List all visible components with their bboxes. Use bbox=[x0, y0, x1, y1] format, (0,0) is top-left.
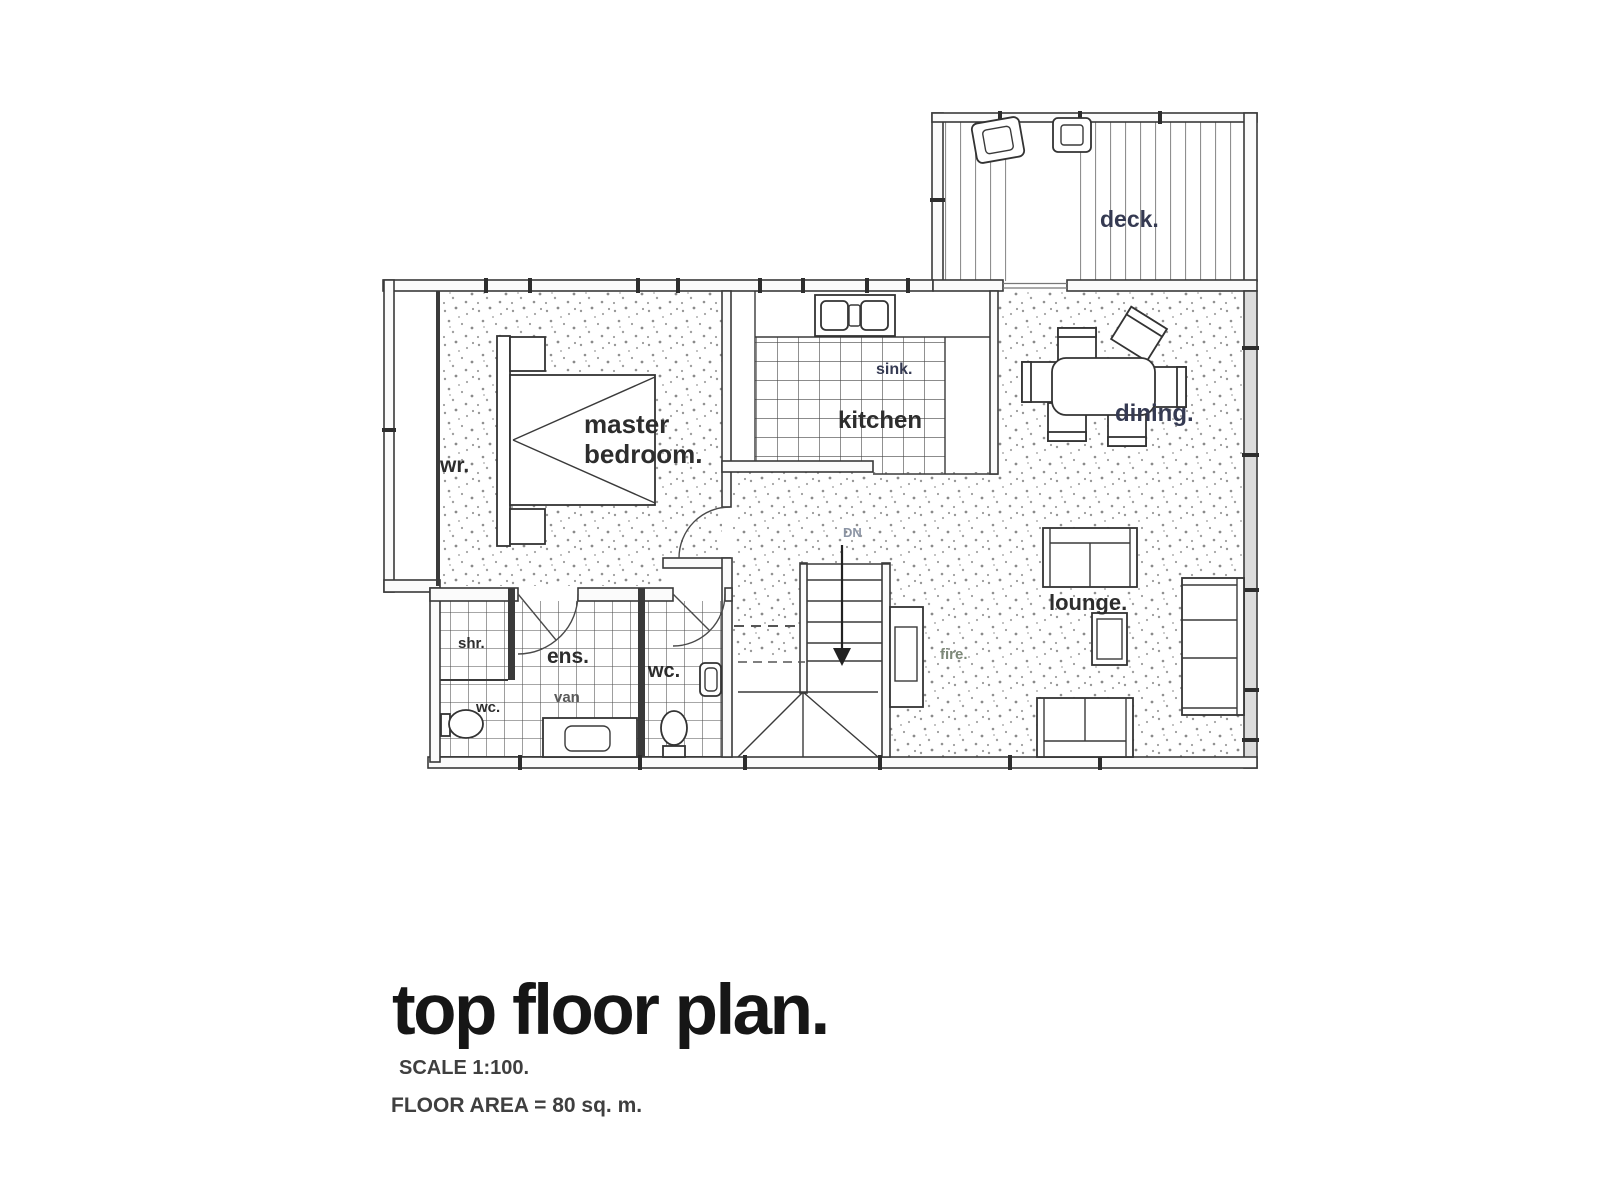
lounge-label: lounge. bbox=[1049, 590, 1127, 615]
vanity-label: van bbox=[554, 689, 580, 706]
deck-window-tick bbox=[1158, 111, 1162, 124]
toilet-cistern bbox=[663, 746, 685, 757]
kitchen-tiles-entry bbox=[873, 461, 945, 474]
sofa-two-seat-lower bbox=[1037, 698, 1133, 757]
shower-ensuite-divider bbox=[508, 588, 515, 680]
kitchen-label: kitchen bbox=[838, 407, 922, 434]
left-wall-lower bbox=[430, 588, 440, 762]
bedroom-kitchen-wall bbox=[722, 291, 731, 507]
wardrobe-label: wr. bbox=[439, 454, 469, 477]
bathroom-north-wall-a bbox=[430, 588, 518, 601]
sofa-three-seat bbox=[1182, 578, 1244, 715]
right-wall-glazed bbox=[1244, 291, 1257, 768]
sink-label: sink. bbox=[876, 361, 912, 378]
fire-label: fire. bbox=[940, 646, 968, 663]
wc-ensuite-label: wc. bbox=[475, 699, 500, 716]
page: { "floor_plan": { "rooms": { "deck": "de… bbox=[0, 0, 1600, 1203]
top-wall bbox=[383, 280, 933, 291]
floor-plan: deck. master bedroom. wr. sink. kitchen … bbox=[0, 0, 1600, 1203]
nightstand bbox=[510, 509, 545, 544]
master-bedroom-label-line1: master bbox=[584, 409, 669, 439]
deck-window-tick bbox=[930, 198, 945, 202]
bottom-wall bbox=[428, 757, 1257, 768]
plan-floor-area: FLOOR AREA = 80 sq. m. bbox=[391, 1094, 642, 1117]
plan-title: top floor plan. bbox=[392, 971, 828, 1050]
deck-label: deck. bbox=[1100, 206, 1159, 232]
plan-scale: SCALE 1:100. bbox=[399, 1057, 529, 1079]
ensuite-wc-divider bbox=[638, 588, 645, 757]
stair-landing bbox=[732, 656, 807, 757]
coffee-table bbox=[1092, 613, 1127, 665]
bathroom-north-wall-b bbox=[578, 588, 673, 601]
deck-edge-wall-left bbox=[933, 280, 1003, 291]
master-bedroom-label-line2: bedroom. bbox=[584, 439, 702, 469]
bathroom-north-wall-c bbox=[725, 588, 732, 601]
stairs-dn-label: DN bbox=[843, 525, 862, 540]
deck-chair-icon bbox=[971, 116, 1025, 164]
deck-area bbox=[930, 111, 1257, 281]
sofa-two-seat bbox=[1043, 528, 1137, 587]
fireplace bbox=[890, 607, 923, 707]
kitchen-sink bbox=[815, 295, 895, 336]
kitchen-right-wall bbox=[990, 291, 998, 474]
shower-label: shr. bbox=[458, 635, 485, 652]
left-wall-upper bbox=[384, 280, 394, 592]
wardrobe-edge bbox=[436, 291, 440, 586]
wc-separate-label: wc. bbox=[647, 660, 680, 682]
stair-left-wall bbox=[800, 563, 807, 693]
toilet bbox=[661, 711, 687, 745]
nightstand bbox=[510, 337, 545, 371]
dining-label: dining. bbox=[1115, 400, 1194, 427]
bedroom-south-stub bbox=[663, 558, 730, 568]
deck-chair-icon bbox=[1053, 118, 1091, 152]
stair-right-wall bbox=[882, 563, 890, 757]
ensuite-label: ens. bbox=[547, 645, 589, 668]
kitchen-tiles bbox=[755, 337, 945, 461]
deck-edge-wall-right bbox=[1067, 280, 1257, 291]
kitchen-bottom-wall bbox=[722, 461, 873, 472]
